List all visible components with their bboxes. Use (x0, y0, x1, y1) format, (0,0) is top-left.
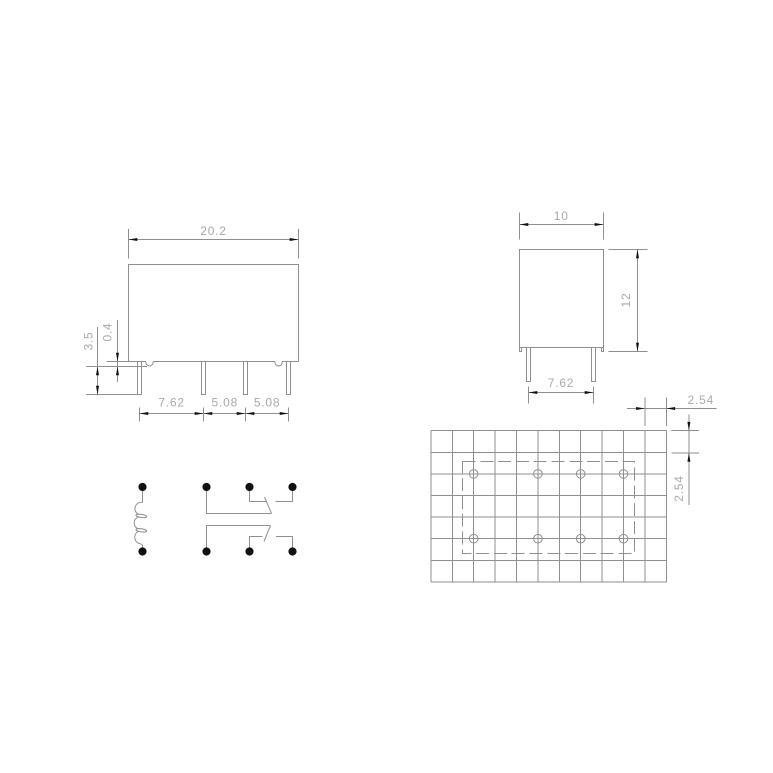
svg-text:0.4: 0.4 (101, 322, 115, 341)
svg-text:20.2: 20.2 (200, 224, 227, 238)
svg-text:3.5: 3.5 (82, 331, 96, 350)
svg-text:2.54: 2.54 (688, 393, 715, 407)
svg-text:5.08: 5.08 (254, 396, 281, 410)
svg-text:7.62: 7.62 (158, 396, 185, 410)
svg-text:2.54: 2.54 (672, 475, 686, 502)
svg-text:7.62: 7.62 (548, 376, 575, 390)
svg-text:5.08: 5.08 (212, 396, 239, 410)
svg-text:12: 12 (619, 293, 633, 308)
svg-text:10: 10 (554, 209, 569, 223)
